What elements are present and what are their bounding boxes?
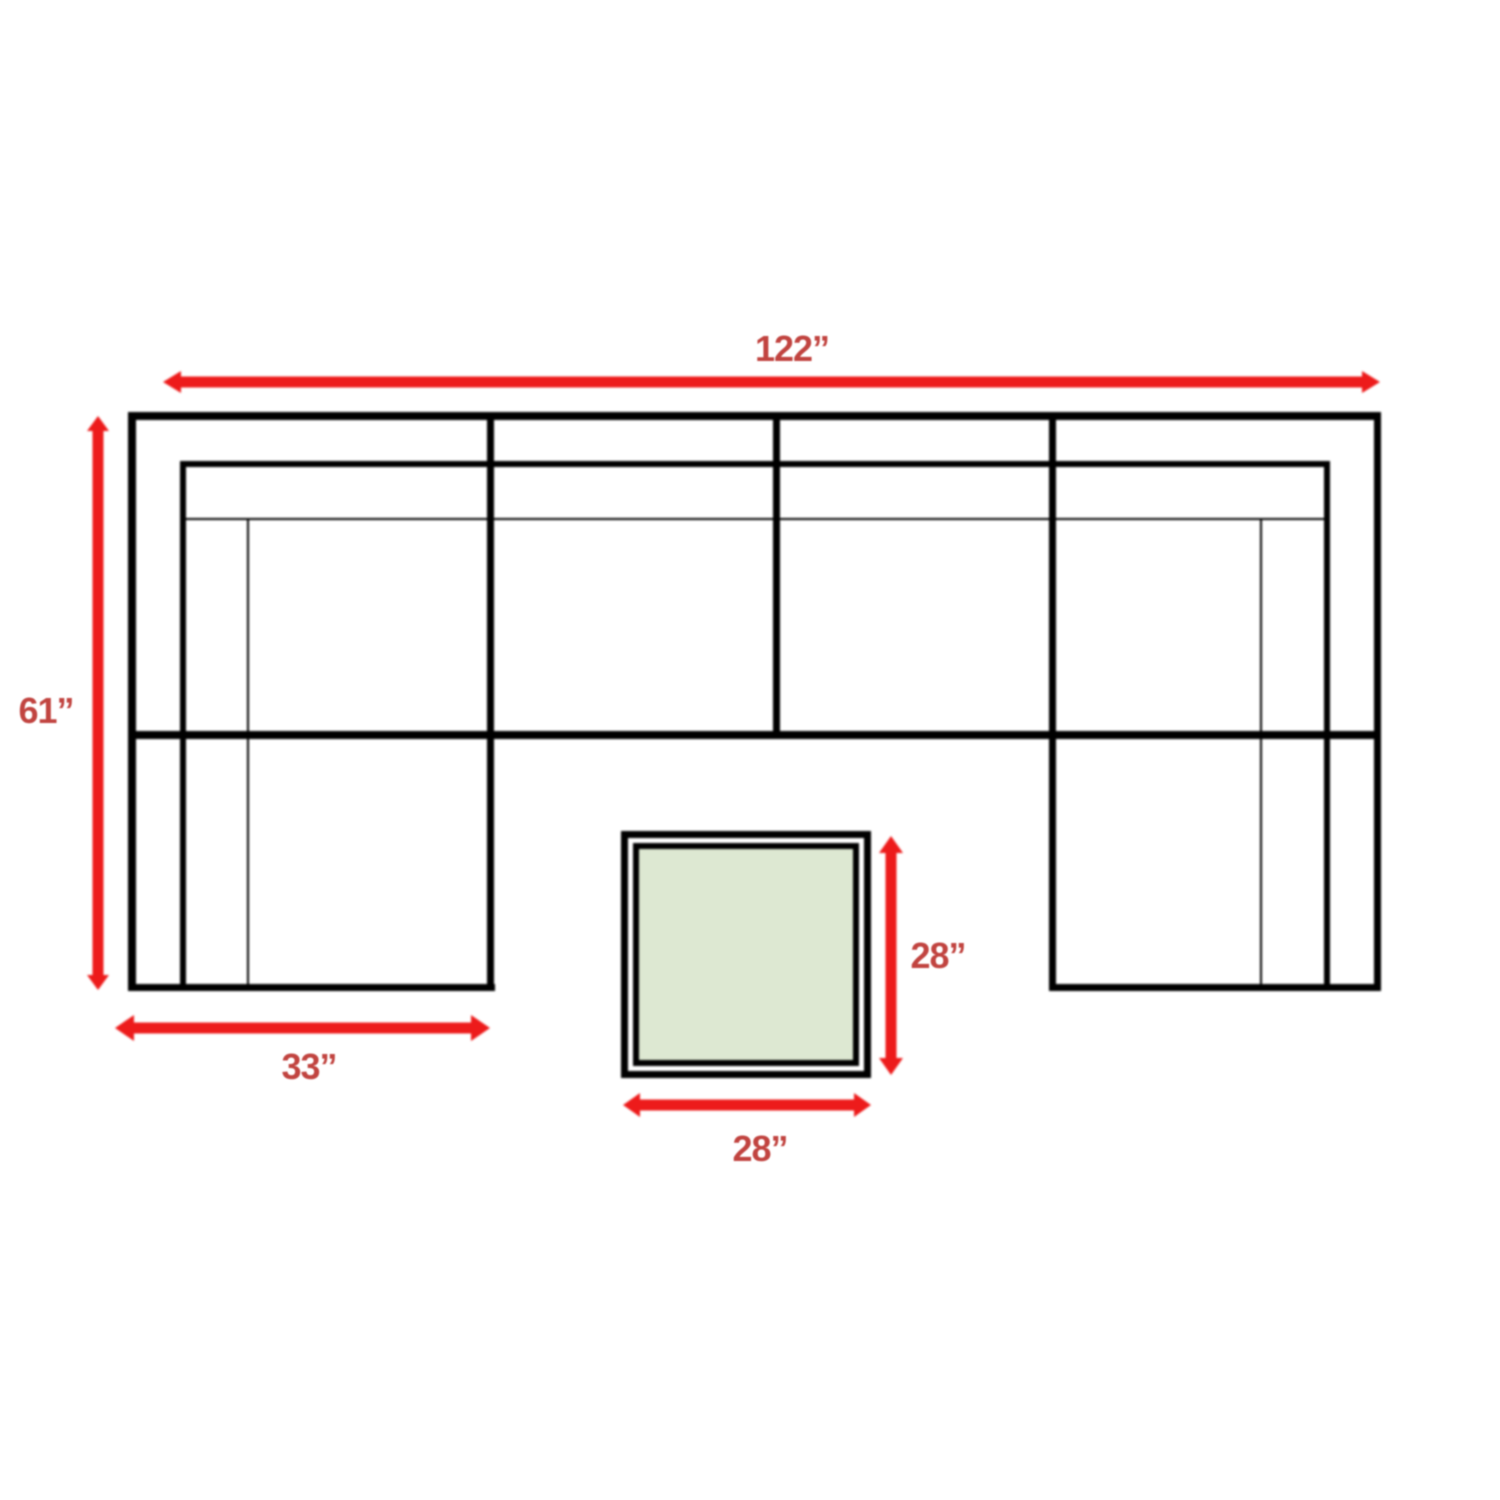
svg-text:28”: 28” [910,935,965,976]
svg-text:33”: 33” [281,1046,336,1087]
svg-text:61”: 61” [18,690,73,731]
svg-text:122”: 122” [755,328,829,369]
svg-text:28”: 28” [732,1128,787,1169]
